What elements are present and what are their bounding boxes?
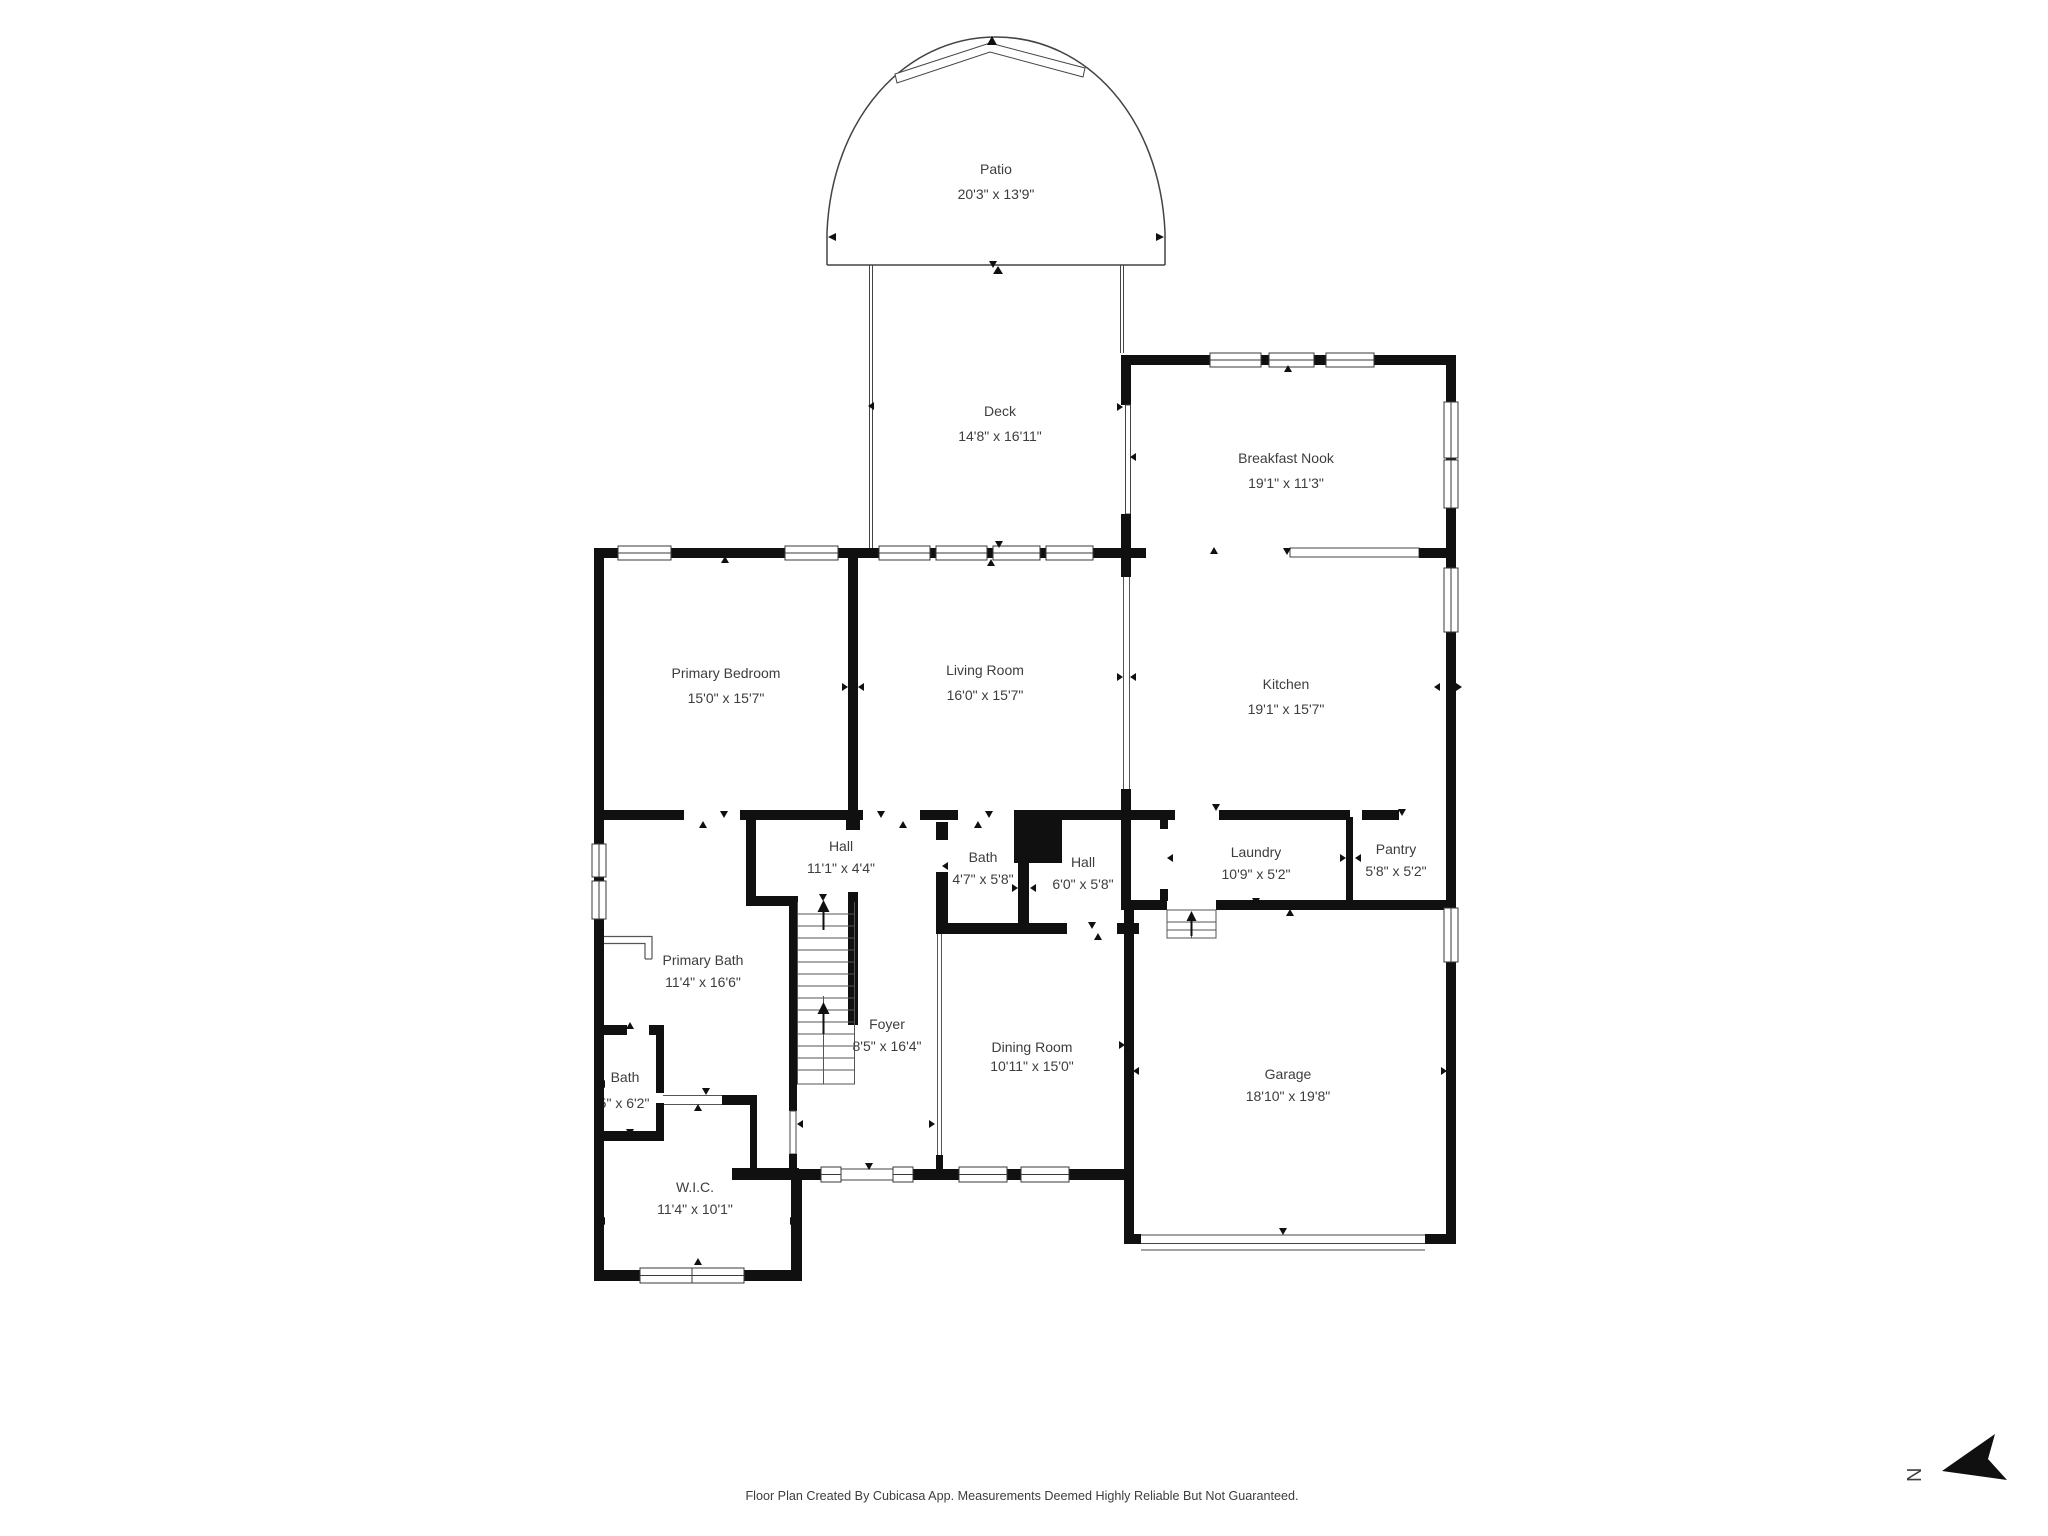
svg-text:'5" x 6'2": '5" x 6'2": [596, 1095, 649, 1111]
svg-text:Laundry: Laundry: [1231, 844, 1282, 860]
svg-text:Bath: Bath: [611, 1069, 640, 1085]
svg-text:11'1" x 4'4": 11'1" x 4'4": [807, 860, 875, 876]
svg-text:Deck: Deck: [984, 403, 1017, 419]
svg-text:Kitchen: Kitchen: [1263, 676, 1310, 692]
svg-text:Living Room: Living Room: [946, 662, 1024, 678]
svg-text:5'8" x 5'2": 5'8" x 5'2": [1365, 863, 1426, 879]
svg-text:15'0" x 15'7": 15'0" x 15'7": [688, 690, 765, 706]
svg-text:10'11" x 15'0": 10'11" x 15'0": [990, 1058, 1074, 1074]
svg-text:Bath: Bath: [969, 849, 998, 865]
svg-text:Floor Plan Created By Cubicasa: Floor Plan Created By Cubicasa App. Meas…: [745, 1489, 1298, 1503]
svg-text:Hall: Hall: [829, 838, 853, 854]
svg-text:Pantry: Pantry: [1376, 841, 1416, 857]
svg-text:20'3" x 13'9": 20'3" x 13'9": [958, 186, 1035, 202]
svg-text:N: N: [1904, 1468, 1926, 1482]
svg-text:16'0" x 15'7": 16'0" x 15'7": [947, 687, 1024, 703]
svg-text:Breakfast Nook: Breakfast Nook: [1238, 450, 1335, 466]
svg-text:19'1" x 11'3": 19'1" x 11'3": [1248, 475, 1324, 491]
svg-text:Dining Room: Dining Room: [992, 1039, 1073, 1055]
svg-text:W.I.C.: W.I.C.: [676, 1179, 714, 1195]
svg-text:18'10" x 19'8": 18'10" x 19'8": [1246, 1088, 1331, 1104]
svg-text:6'0" x 5'8": 6'0" x 5'8": [1052, 876, 1113, 892]
svg-text:Primary Bath: Primary Bath: [663, 952, 744, 968]
svg-text:8'5" x 16'4": 8'5" x 16'4": [853, 1038, 922, 1054]
svg-text:4'7" x 5'8": 4'7" x 5'8": [952, 871, 1013, 887]
svg-text:Hall: Hall: [1071, 854, 1095, 870]
svg-text:14'8" x 16'11": 14'8" x 16'11": [958, 428, 1042, 444]
svg-text:11'4" x 16'6": 11'4" x 16'6": [665, 974, 741, 990]
svg-text:Foyer: Foyer: [869, 1016, 905, 1032]
svg-text:Primary Bedroom: Primary Bedroom: [672, 665, 781, 681]
svg-text:Garage: Garage: [1265, 1066, 1312, 1082]
svg-text:Patio: Patio: [980, 161, 1012, 177]
svg-text:19'1" x 15'7": 19'1" x 15'7": [1248, 701, 1325, 717]
svg-text:11'4" x 10'1": 11'4" x 10'1": [657, 1201, 733, 1217]
svg-text:10'9" x 5'2": 10'9" x 5'2": [1222, 866, 1291, 882]
